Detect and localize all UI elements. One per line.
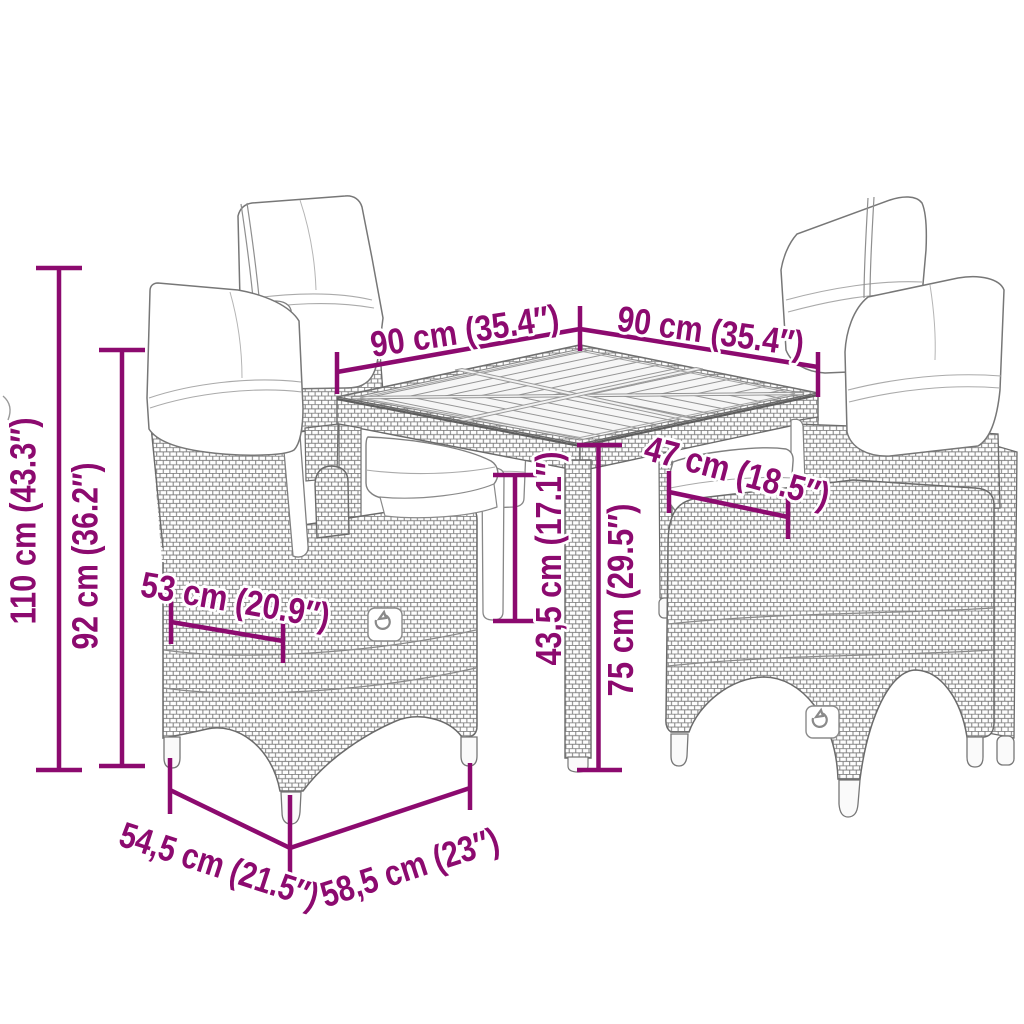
svg-text:92 cm (36.2″): 92 cm (36.2″) <box>65 463 106 650</box>
svg-text:75 cm (29.5″): 75 cm (29.5″) <box>600 504 641 697</box>
svg-text:110 cm (43.3″): 110 cm (43.3″) <box>3 418 44 625</box>
svg-text:43,5 cm (17.1″): 43,5 cm (17.1″) <box>528 452 569 666</box>
